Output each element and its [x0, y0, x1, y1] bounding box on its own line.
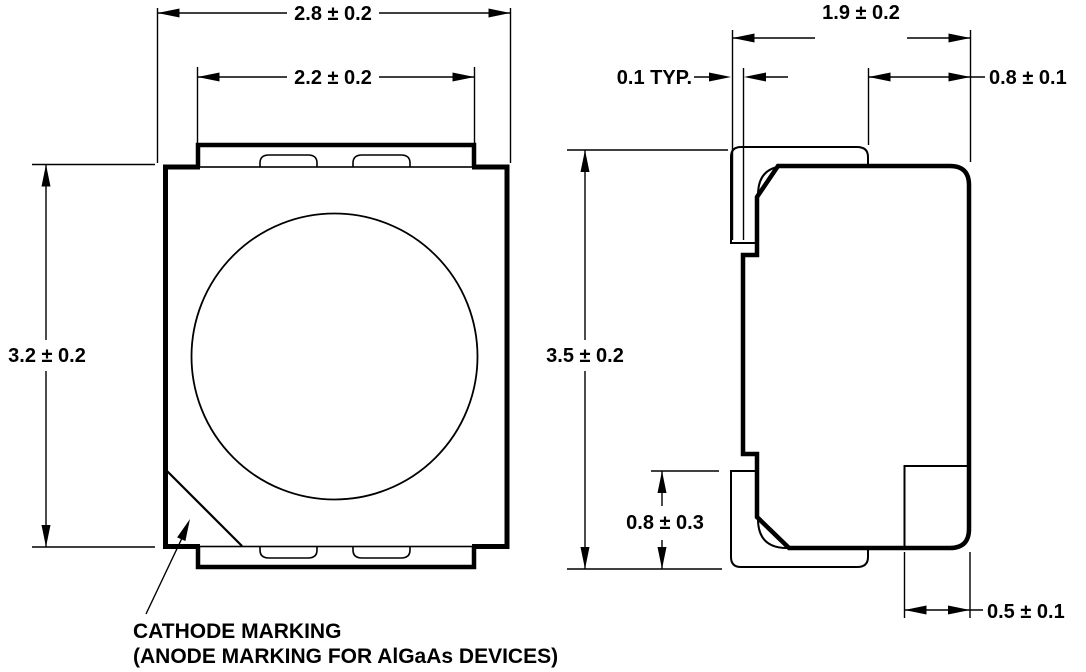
- arrow-22-left: [198, 73, 220, 82]
- side-view: [731, 147, 969, 567]
- dim-side-view-depth-label: 1.9 ± 0.2: [822, 2, 900, 24]
- arrow-19-right: [949, 34, 971, 43]
- dim-side-view-top-lead-label: 0.8 ± 0.1: [989, 67, 1067, 89]
- arrow-32-bottom: [42, 525, 51, 547]
- arrow-05-right: [948, 606, 970, 615]
- top-view: [163, 145, 510, 567]
- arrow-35-bottom: [581, 547, 590, 569]
- side-view-body: [743, 166, 969, 548]
- arrow-28-left: [158, 9, 180, 18]
- arrow-01-right: [744, 73, 766, 82]
- arrow-32-top: [42, 165, 51, 187]
- cathode-note-line2: (ANODE MARKING FOR AlGaAs DEVICES): [133, 645, 558, 668]
- dim-top-view-height-label: 3.2 ± 0.2: [8, 345, 86, 367]
- cathode-note: CATHODE MARKING (ANODE MARKING FOR AlGaA…: [133, 620, 558, 668]
- arrow-083-top: [658, 471, 667, 493]
- top-view-upper-tab: [198, 145, 474, 166]
- dim-side-view-lead-height-label: 0.8 ± 0.3: [626, 512, 704, 534]
- dim-side-view-height-label: 3.5 ± 0.2: [546, 345, 624, 367]
- arrow-081-right: [949, 73, 971, 82]
- arrow-083-bottom: [658, 547, 667, 569]
- arrow-05-left: [905, 606, 927, 615]
- top-view-body: [166, 167, 508, 547]
- dim-side-view-terminal-label: 0.5 ± 0.1: [987, 601, 1065, 623]
- arrow-19-left: [733, 34, 755, 43]
- dim-top-view-width-label: 2.8 ± 0.2: [294, 3, 372, 25]
- dim-top-view-inner-width-label: 2.2 ± 0.2: [294, 67, 372, 89]
- package-outline-svg: 2.8 ± 0.2 2.2 ± 0.2 3.2 ± 0.2 1.9 ± 0.2 …: [0, 0, 1086, 672]
- dim-side-view-lead-standoff-label: 0.1 TYP.: [617, 67, 692, 89]
- arrow-28-right: [489, 9, 511, 18]
- arrow-35-top: [581, 150, 590, 172]
- arrow-01-left: [709, 73, 731, 82]
- technical-drawing: 2.8 ± 0.2 2.2 ± 0.2 3.2 ± 0.2 1.9 ± 0.2 …: [0, 0, 1086, 672]
- arrow-22-right: [453, 73, 475, 82]
- arrow-081-left: [869, 73, 891, 82]
- top-view-lower-tab: [198, 547, 474, 567]
- cathode-note-line1: CATHODE MARKING: [133, 620, 341, 643]
